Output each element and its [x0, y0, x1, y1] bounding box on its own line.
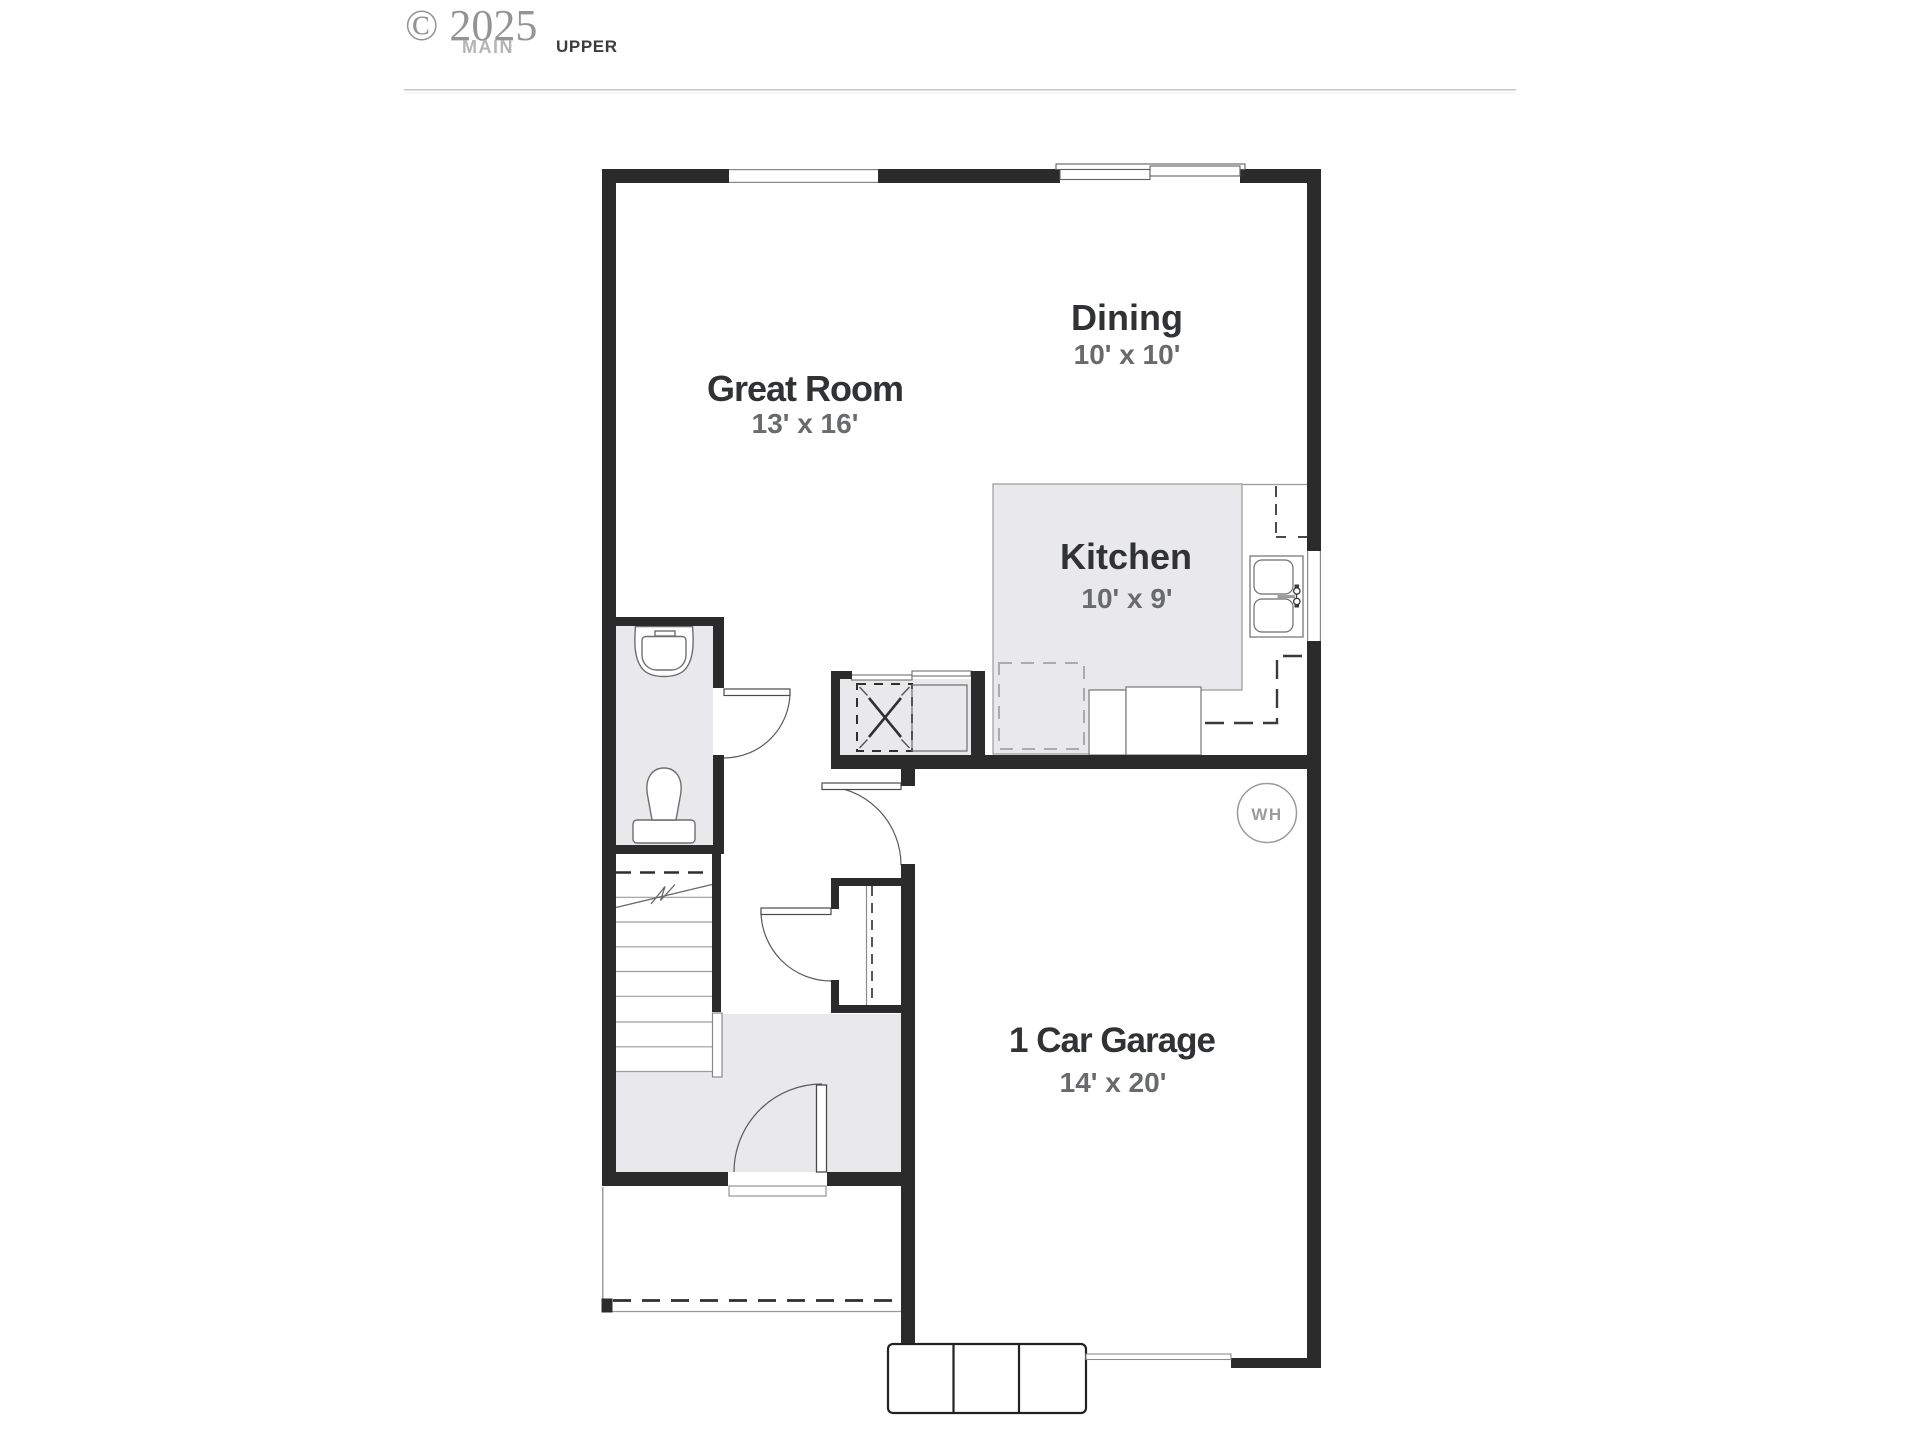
svg-text:1 Car Garage: 1 Car Garage	[1009, 1021, 1215, 1060]
svg-text:Great Room: Great Room	[707, 368, 903, 409]
svg-text:10' x 10': 10' x 10'	[1074, 339, 1181, 370]
svg-text:MAIN: MAIN	[462, 37, 514, 57]
svg-text:14' x 20': 14' x 20'	[1060, 1067, 1167, 1098]
svg-text:UPPER: UPPER	[556, 37, 618, 56]
svg-text:13' x 16': 13' x 16'	[752, 408, 859, 439]
svg-text:WH: WH	[1251, 805, 1282, 824]
svg-text:Kitchen: Kitchen	[1060, 536, 1192, 577]
svg-text:Dining: Dining	[1071, 297, 1183, 338]
svg-text:10' x 9': 10' x 9'	[1081, 583, 1172, 614]
